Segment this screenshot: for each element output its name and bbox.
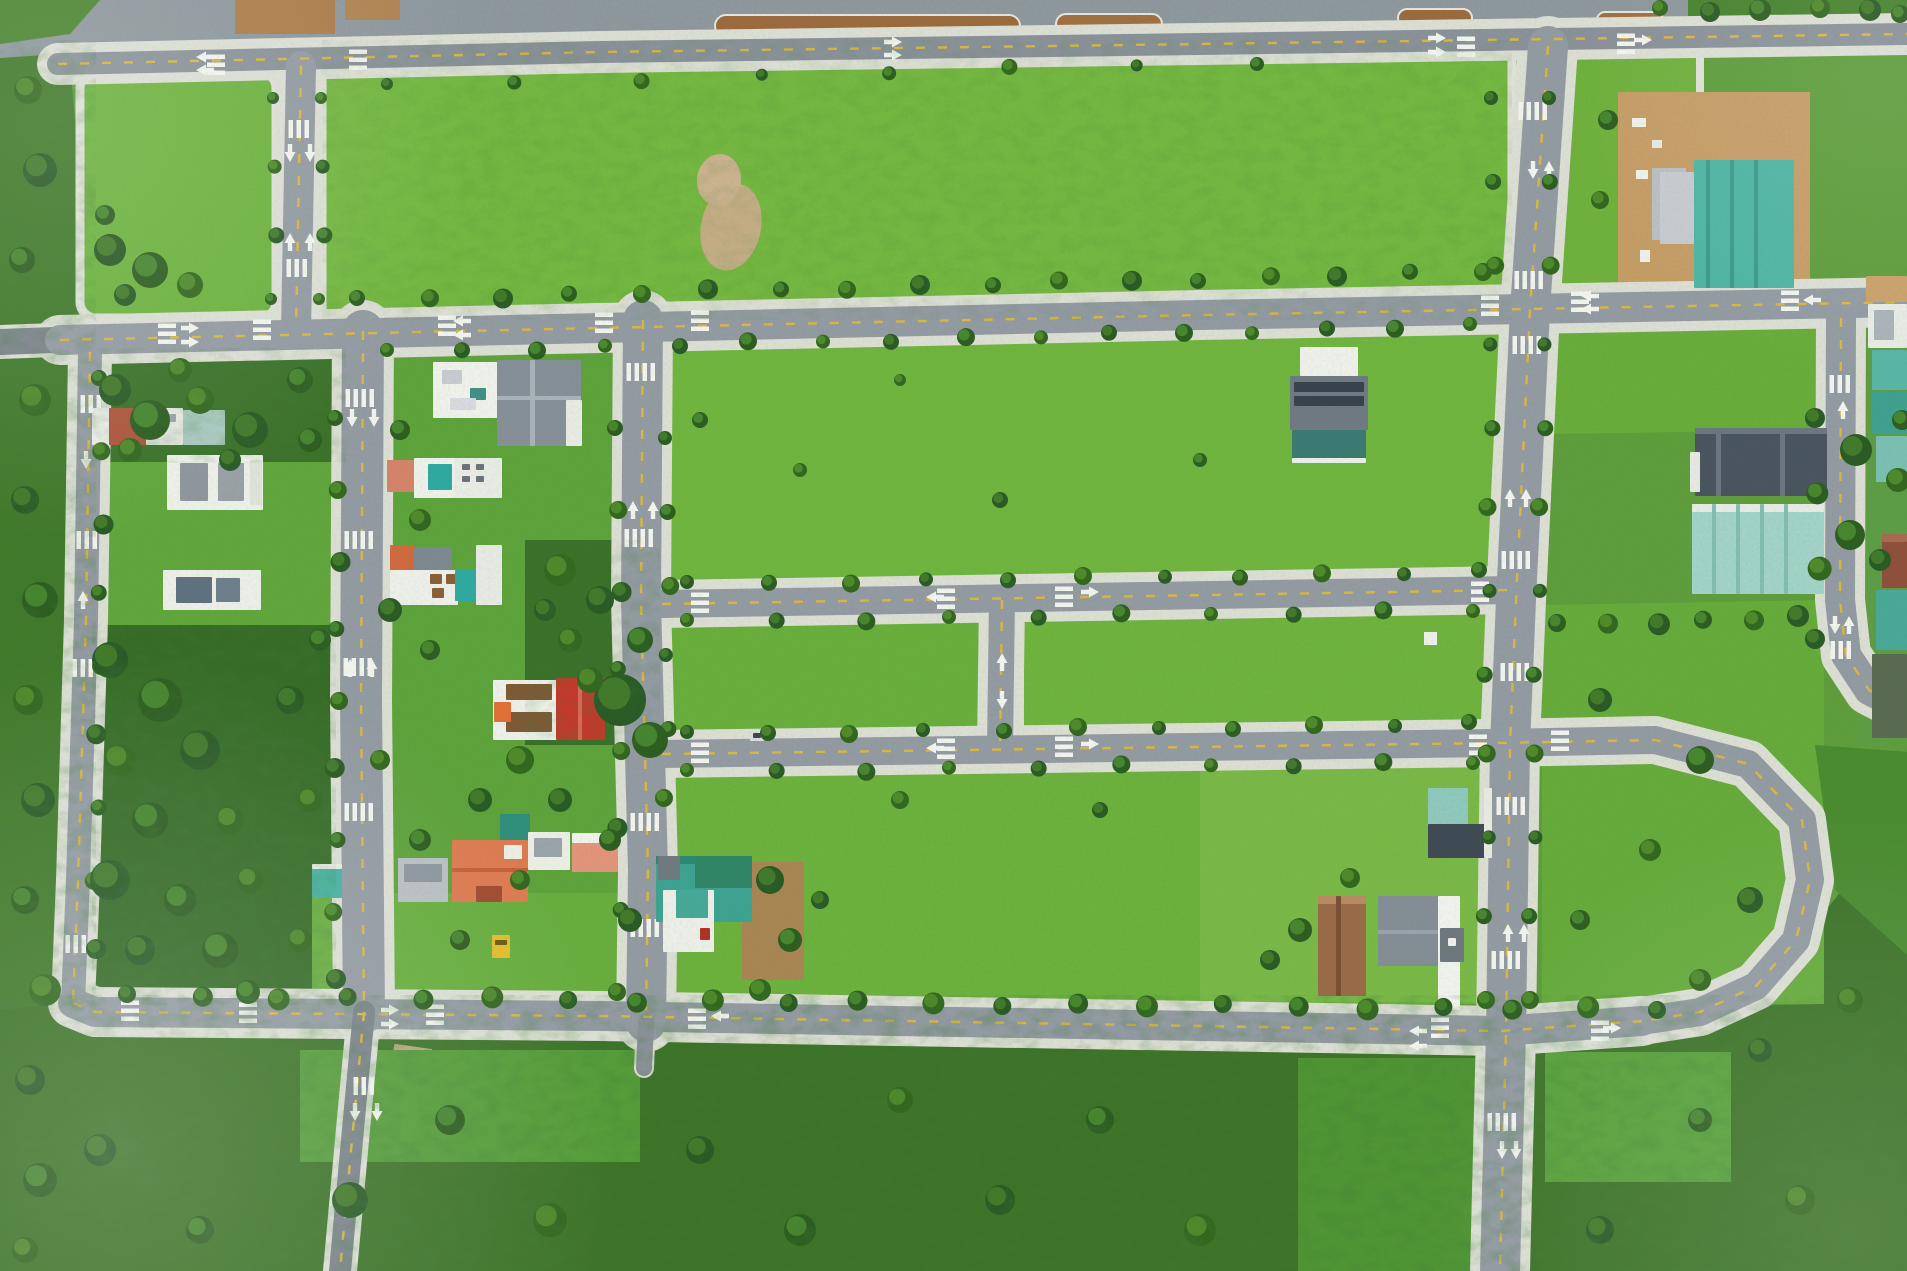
layer-atmosphere: [0, 0, 1907, 1271]
grain-texture: [322, 40, 1512, 320]
grain-texture: [525, 540, 660, 745]
aerial-photo-svg: [0, 0, 1907, 1271]
aerial-photo-viewport: [0, 0, 1907, 1271]
